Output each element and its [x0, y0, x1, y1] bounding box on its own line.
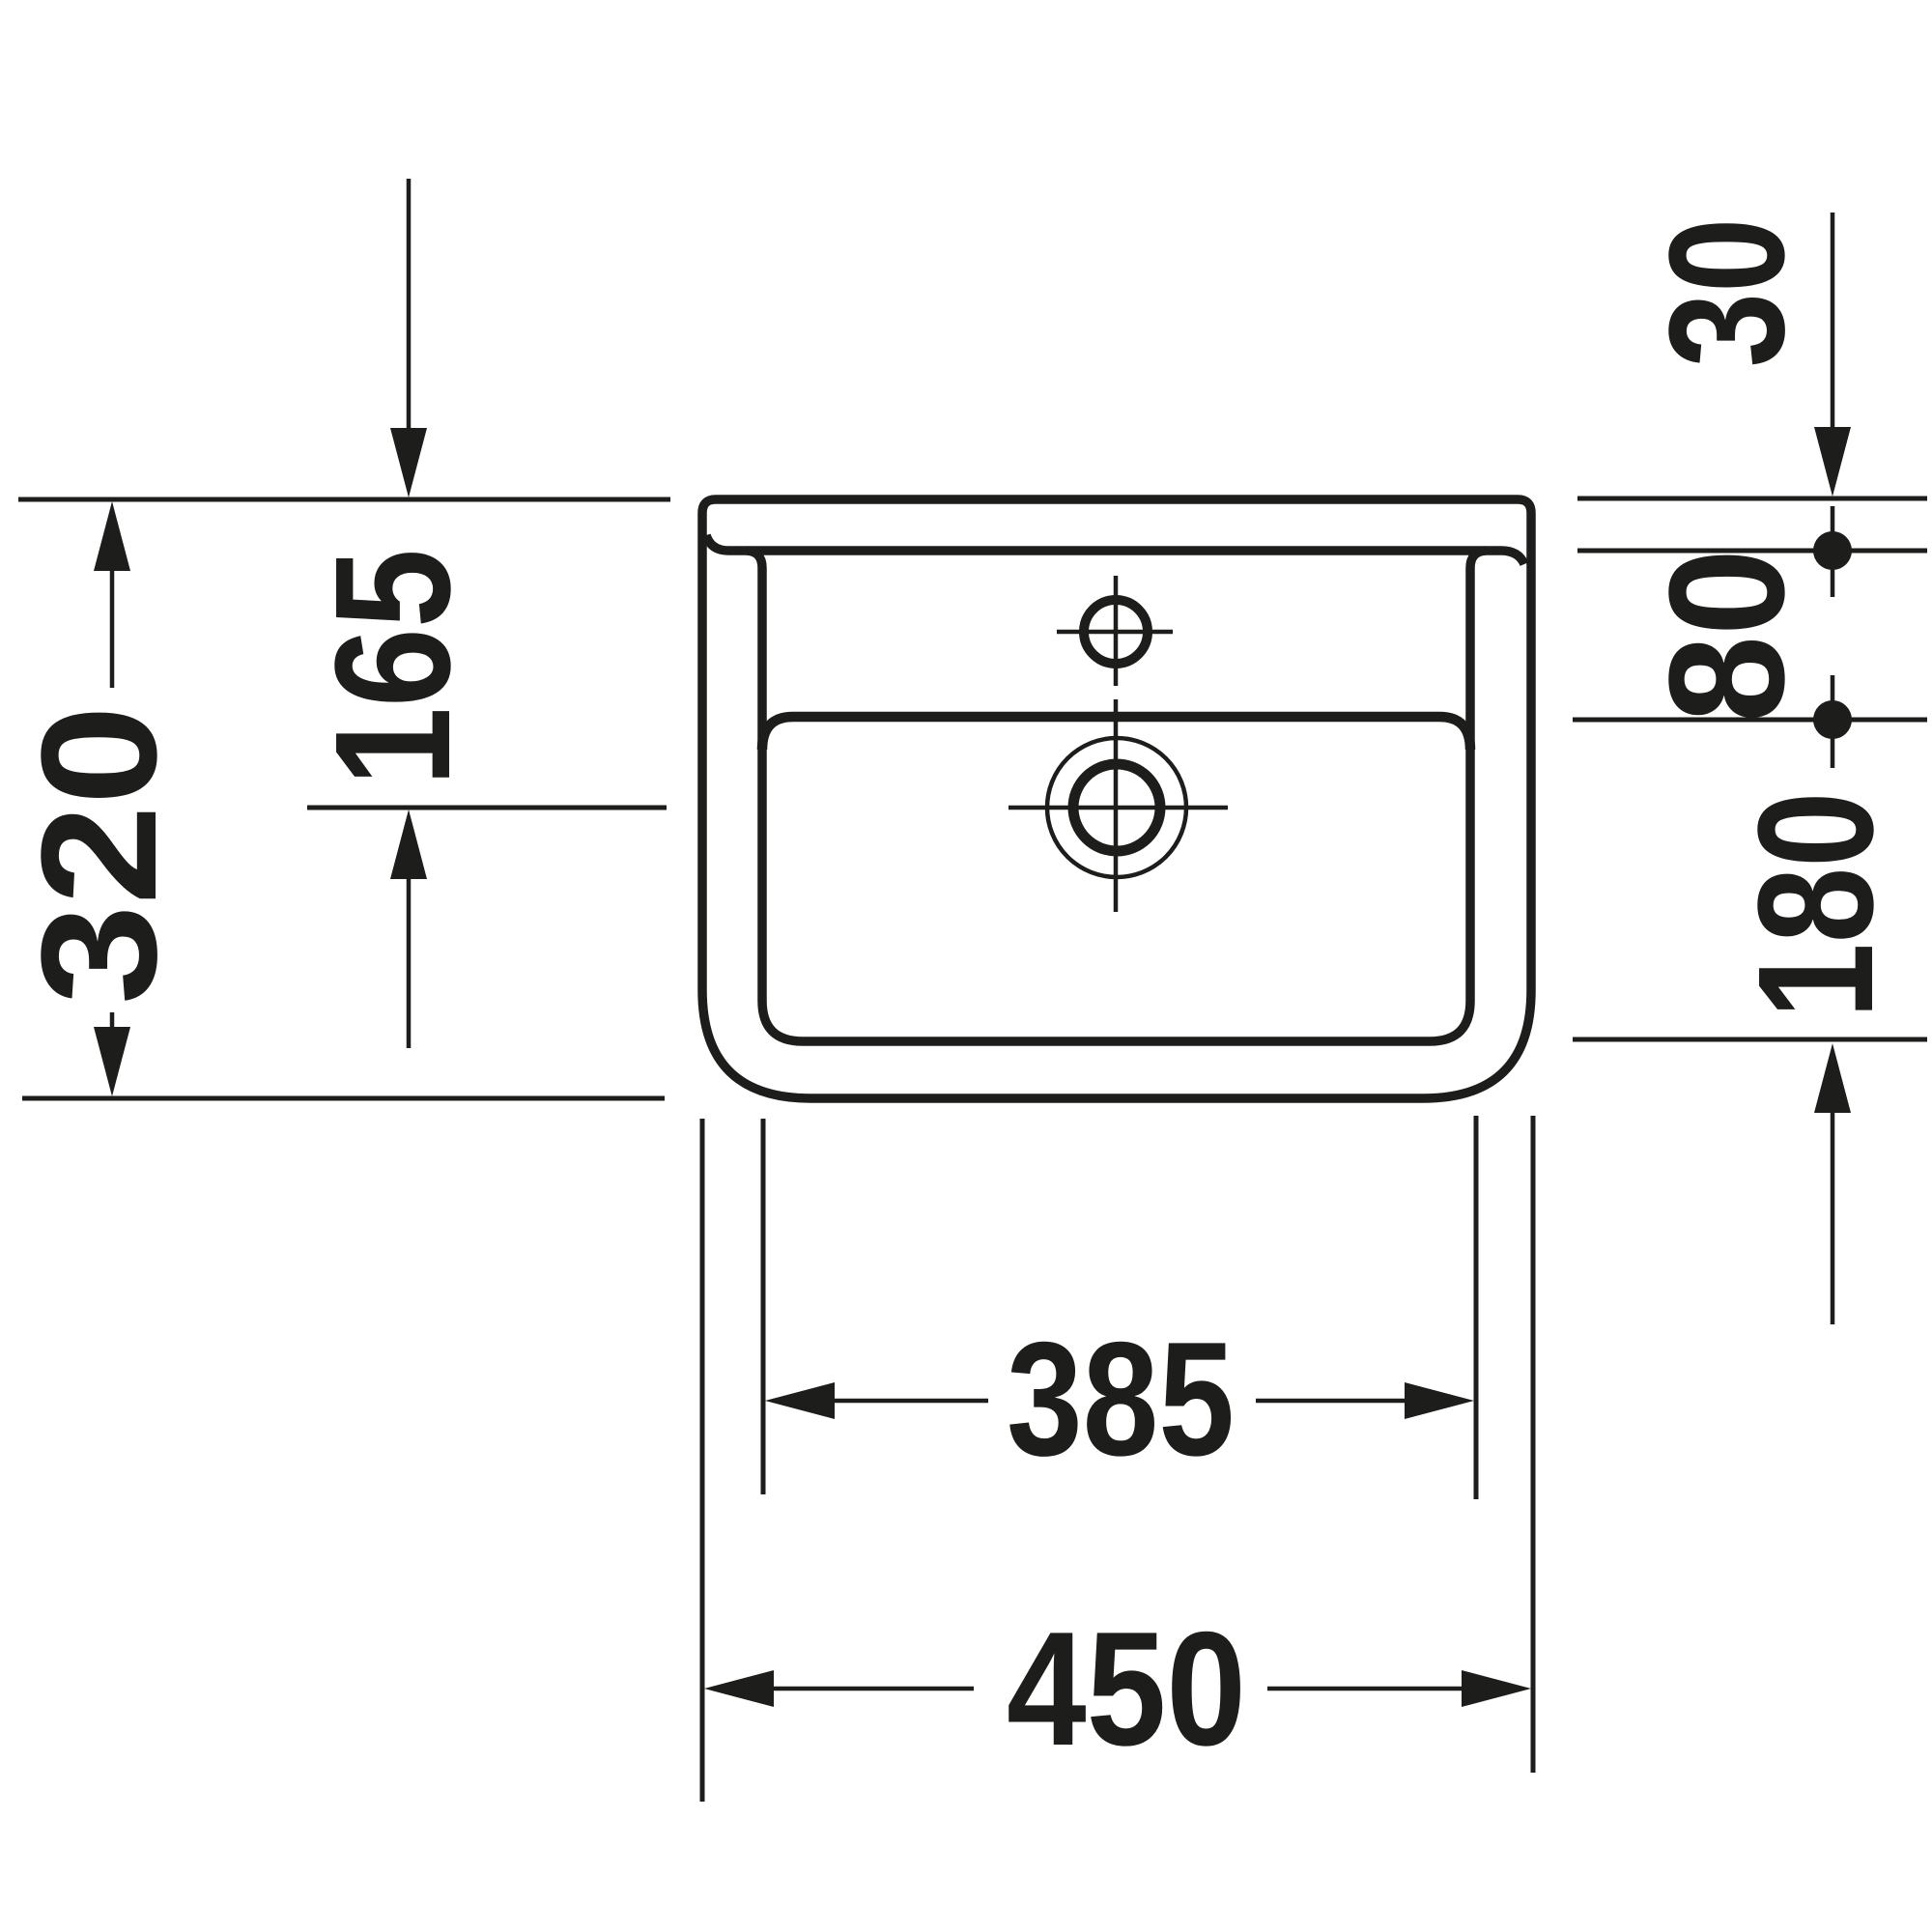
dim-rim-offset: 30: [1577, 213, 1927, 597]
arrow-up-icon: [94, 501, 130, 571]
arrow-right-icon: [1462, 1670, 1531, 1707]
dim-label-total-width: 450: [1007, 1598, 1246, 1779]
arrow-up-icon: [390, 810, 427, 879]
technical-drawing-page: 320 165 30 80: [0, 0, 1932, 1932]
dim-label-total-height: 320: [8, 705, 191, 1005]
dim-label-drain-height: 165: [301, 549, 485, 786]
dim-label-bowl-width: 385: [1007, 1308, 1235, 1490]
dim-label-hole-gap: 80: [1635, 549, 1819, 723]
drain-symbol: [1009, 738, 1228, 877]
arrow-down-icon: [1814, 427, 1851, 497]
dim-hole-gap: 80: [1573, 549, 1927, 768]
arrow-left-icon: [765, 1382, 835, 1419]
arrow-right-icon: [1405, 1382, 1474, 1419]
fixing-point-dot: [1813, 531, 1852, 570]
dim-label-rim-offset: 30: [1635, 218, 1819, 368]
arrow-left-icon: [704, 1670, 774, 1707]
washbasin-dimension-drawing: 320 165 30 80: [0, 0, 1932, 1932]
dim-bowl-width: 385: [763, 1116, 1476, 1499]
arrow-down-icon: [94, 1027, 130, 1096]
basin-rim-underside-line: [706, 535, 1524, 564]
fixing-point-dot: [1813, 700, 1852, 739]
arrow-up-icon: [1814, 1043, 1851, 1113]
dim-drain-height: 165: [301, 179, 667, 1048]
dim-label-hole-to-bottom: 180: [1724, 792, 1908, 1019]
arrow-down-icon: [390, 428, 427, 497]
dim-hole-to-bottom: 180: [1573, 792, 1927, 1325]
